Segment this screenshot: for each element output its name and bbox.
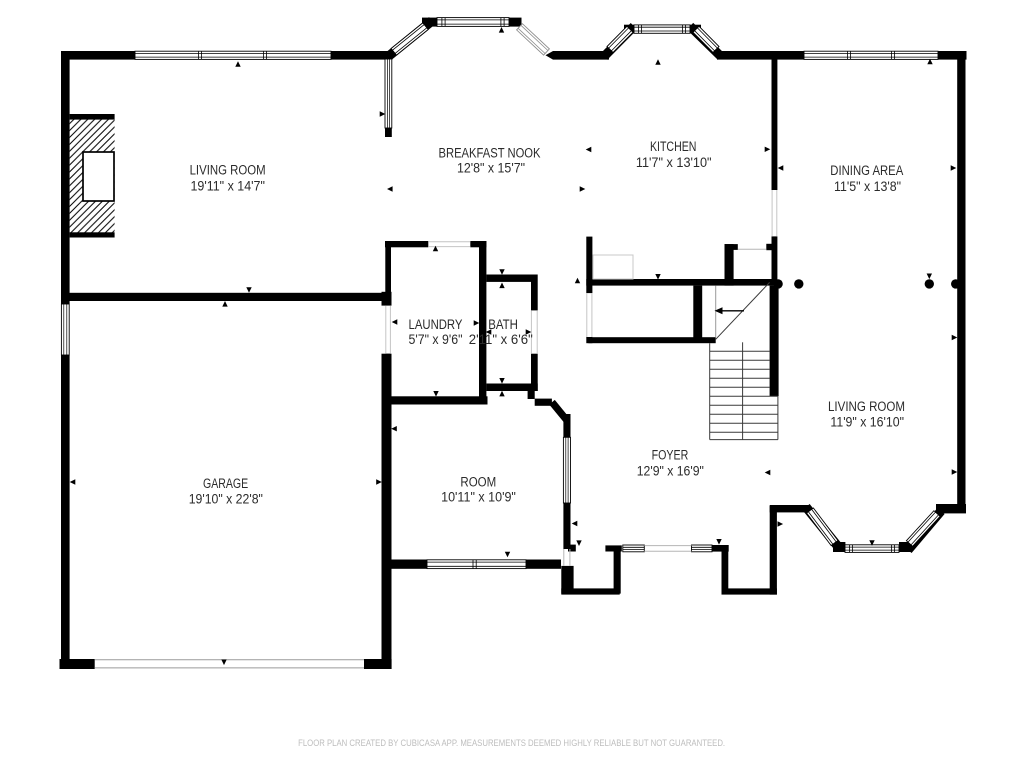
svg-text:LIVING ROOM: LIVING ROOM [828,399,905,414]
svg-text:11'7" x 13'10": 11'7" x 13'10" [636,155,712,170]
svg-text:KITCHEN: KITCHEN [650,139,697,154]
svg-text:LAUNDRY: LAUNDRY [409,317,463,332]
svg-text:BATH: BATH [488,317,518,332]
svg-text:19'11" x 14'7": 19'11" x 14'7" [190,178,265,193]
svg-text:ROOM: ROOM [460,474,496,489]
svg-text:GARAGE: GARAGE [203,476,248,491]
svg-text:11'5" x 13'8": 11'5" x 13'8" [834,179,901,194]
svg-text:FOYER: FOYER [652,448,689,463]
svg-text:5'7" x 9'6": 5'7" x 9'6" [409,332,463,347]
svg-text:DINING AREA: DINING AREA [830,163,903,178]
svg-text:LIVING ROOM: LIVING ROOM [190,163,266,178]
svg-text:12'9" x 16'9": 12'9" x 16'9" [637,464,704,479]
svg-text:BREAKFAST NOOK: BREAKFAST NOOK [439,146,541,161]
svg-text:12'8" x 15'7": 12'8" x 15'7" [457,161,525,176]
svg-text:10'11" x 10'9": 10'11" x 10'9" [441,489,516,504]
svg-text:2'11" x 6'6": 2'11" x 6'6" [469,332,533,347]
svg-text:11'9" x 16'10": 11'9" x 16'10" [830,415,904,430]
svg-text:19'10" x 22'8": 19'10" x 22'8" [189,491,263,506]
svg-text:FLOOR PLAN CREATED BY CUBICASA: FLOOR PLAN CREATED BY CUBICASA APP. MEAS… [298,738,725,748]
